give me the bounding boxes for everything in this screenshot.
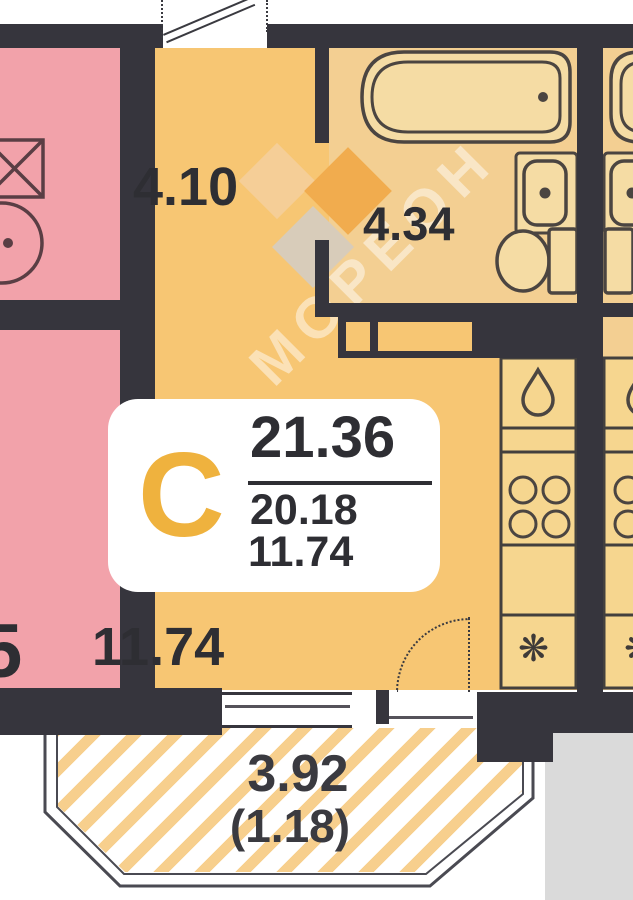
room-area-value: 11.74 <box>248 531 353 574</box>
wall-adjacent-divider <box>0 300 120 330</box>
balcony-area-reduced-label: (1.18) <box>190 799 390 853</box>
wardrobe-cell-small <box>346 322 370 351</box>
neighbor-fridge-snowflake-icon: ❋ <box>624 630 633 667</box>
wall-bottom-right <box>553 692 633 733</box>
window <box>222 692 352 728</box>
floor-plan: ❋ ❋ МОРЕОН С 21.36 20.18 11.74 4.10 <box>0 0 633 900</box>
wall-bottom-right-step <box>477 692 553 762</box>
entrance-jamb-dotted-right <box>266 0 268 32</box>
wall-bathroom-upper <box>315 48 329 143</box>
balcony-door-leaf-dotted <box>468 617 470 692</box>
wardrobe-cell-large <box>378 322 472 351</box>
total-area-value: 21.36 <box>250 409 395 467</box>
bathroom-area-label: 4.34 <box>363 196 454 251</box>
hallway-area-label: 4.10 <box>133 156 238 218</box>
neighbor-toilet <box>605 229 633 293</box>
balcony-door-opening <box>352 690 477 724</box>
entrance-jamb-dotted-left <box>161 0 163 38</box>
window-mid-line <box>225 705 350 708</box>
wall-neighbor-horizontal <box>603 303 633 317</box>
living-area-value: 20.18 <box>250 489 358 532</box>
living-room-area-label: 11.74 <box>92 616 224 678</box>
adjacent-room-area-label: 5 <box>0 608 22 695</box>
fridge-snowflake-icon: ❋ <box>518 630 549 667</box>
washbasin <box>516 153 577 233</box>
neighbor-washbasin <box>604 153 633 233</box>
apartment-info-badge: С 21.36 20.18 11.74 <box>108 399 440 592</box>
wall-bottom-left <box>0 688 222 735</box>
neighbor-bathtub <box>611 52 633 142</box>
toilet <box>497 229 577 293</box>
wardrobe <box>338 315 577 358</box>
bathtub-drain <box>538 92 548 102</box>
balcony-door-jamb <box>376 690 389 724</box>
wall-right-party <box>577 48 603 692</box>
adjacent-round-fixture <box>0 203 42 283</box>
balcony-area-label: 3.92 <box>208 744 388 804</box>
area-divider-line <box>248 481 432 485</box>
apartment-type-letter: С <box>138 435 225 555</box>
balcony-door-sill-line <box>389 716 473 719</box>
adjacent-washing-machine <box>0 140 43 197</box>
wall-top-right <box>267 24 633 48</box>
